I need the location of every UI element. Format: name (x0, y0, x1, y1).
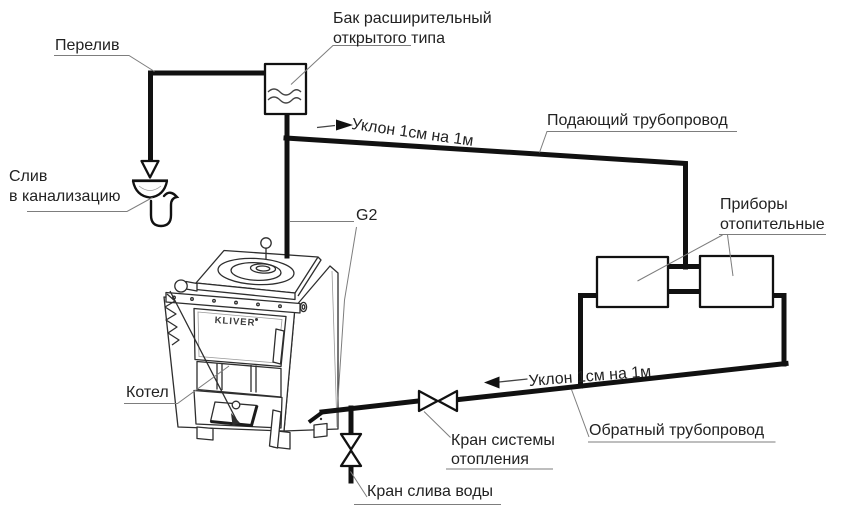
side-vent-hole-inner (302, 305, 305, 309)
return-flow-line (499, 379, 528, 382)
side-screw (320, 418, 322, 420)
drain-valve-label: Кран слива воды (367, 482, 493, 502)
supply-pipe (286, 138, 686, 267)
drain-valve (341, 434, 361, 466)
expansion-tank-label: Бак расширительный открытого типа (333, 9, 492, 48)
bolt (257, 303, 260, 306)
return-pipe-label: Обратный трубопровод (589, 421, 764, 441)
boiler-illustration (164, 238, 338, 449)
bolt (213, 300, 216, 303)
radiator-left (597, 257, 668, 307)
heaters-label-line2: отопительные (720, 215, 825, 235)
boiler-label: Котел (126, 383, 169, 403)
bolt (235, 301, 238, 304)
system-valve-left-triangle (419, 391, 438, 411)
bolt (191, 298, 194, 301)
system-valve (419, 391, 457, 411)
expansion-tank-label-line1: Бак расширительный (333, 9, 492, 29)
regulator-handle (175, 280, 187, 292)
expansion-tank-label-line2: открытого типа (333, 29, 492, 49)
system-valve-right-triangle (439, 391, 458, 411)
heaters-label: Приборы отопительные (720, 195, 825, 234)
leader-system-valve (424, 412, 451, 438)
system-valve-label-line2: отопления (451, 450, 555, 469)
bolt (279, 305, 282, 308)
drain-funnel (132, 181, 168, 198)
boiler-foot-rear (314, 424, 327, 438)
diagram-canvas (0, 0, 850, 519)
drain-siphon-trap (151, 193, 177, 226)
sewer-drain-label-line2: в канализацию (9, 187, 121, 207)
overflow-label: Перелив (55, 36, 119, 56)
return-flow-arrow (484, 377, 500, 389)
system-valve-label-line1: Кран системы (451, 431, 555, 450)
sewer-drain-label-line1: Слив (9, 167, 121, 187)
leader-g2-bottom (338, 227, 357, 406)
heating-system-diagram: Перелив Бак расширительный открытого тип… (0, 0, 850, 519)
overflow-pipe (151, 73, 266, 159)
leader-supply-pipe (540, 132, 738, 153)
sewer-drain-label: Слив в канализацию (9, 167, 121, 207)
drain-valve-bottom-triangle (341, 451, 361, 467)
g2-connection-label: G2 (356, 206, 377, 226)
boiler-foot-left (197, 427, 213, 440)
supply-flow-line (317, 126, 335, 128)
heaters-label-line1: Приборы (720, 195, 825, 215)
drain-valve-top-triangle (341, 434, 361, 450)
radiator-right-loop (773, 296, 784, 365)
knob-ball (261, 238, 271, 248)
supply-pipe-label: Подающий трубопровод (547, 111, 728, 131)
leader-expansion-tank (291, 46, 411, 85)
leader-drain-valve (351, 472, 368, 498)
system-valve-label: Кран системы отопления (451, 431, 555, 469)
leader-return-pipe (572, 390, 590, 438)
overflow-outlet-arrow (142, 161, 159, 178)
ash-door-knob (232, 401, 240, 409)
radiator-right (700, 256, 773, 307)
leader-overflow (54, 56, 155, 72)
